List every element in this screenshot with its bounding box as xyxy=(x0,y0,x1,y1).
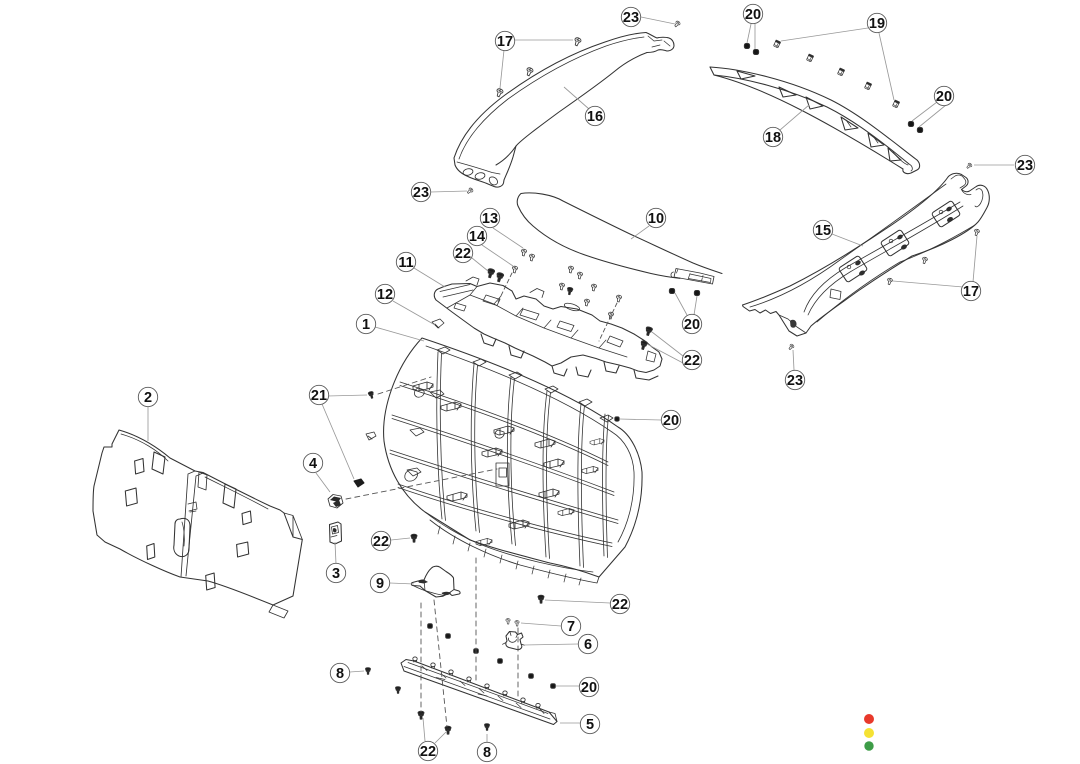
svg-text:3: 3 xyxy=(332,566,340,582)
svg-text:16: 16 xyxy=(587,109,603,125)
svg-text:10: 10 xyxy=(648,211,664,227)
svg-text:7: 7 xyxy=(567,619,575,635)
svg-text:1: 1 xyxy=(362,317,370,333)
svg-text:18: 18 xyxy=(765,130,781,146)
svg-text:2: 2 xyxy=(144,390,152,406)
svg-text:8: 8 xyxy=(483,745,491,761)
svg-text:4: 4 xyxy=(309,456,317,472)
svg-text:22: 22 xyxy=(455,246,471,262)
svg-text:8: 8 xyxy=(336,666,344,682)
svg-text:23: 23 xyxy=(623,10,639,26)
svg-text:14: 14 xyxy=(469,229,485,245)
svg-text:22: 22 xyxy=(420,744,436,760)
svg-text:21: 21 xyxy=(311,388,327,404)
svg-text:17: 17 xyxy=(497,34,513,50)
svg-text:13: 13 xyxy=(482,211,498,227)
svg-text:20: 20 xyxy=(581,680,597,696)
svg-text:20: 20 xyxy=(663,413,679,429)
svg-text:9: 9 xyxy=(376,576,384,592)
svg-text:20: 20 xyxy=(684,317,700,333)
svg-text:17: 17 xyxy=(963,284,979,300)
svg-text:23: 23 xyxy=(1017,158,1033,174)
svg-text:19: 19 xyxy=(869,16,885,32)
svg-text:11: 11 xyxy=(398,255,413,271)
svg-text:6: 6 xyxy=(584,637,592,653)
svg-text:12: 12 xyxy=(377,287,393,303)
svg-text:15: 15 xyxy=(815,223,831,239)
svg-text:20: 20 xyxy=(745,7,761,23)
svg-text:22: 22 xyxy=(373,534,389,550)
svg-text:23: 23 xyxy=(413,185,429,201)
svg-text:22: 22 xyxy=(612,597,628,613)
svg-text:5: 5 xyxy=(586,717,594,733)
svg-text:20: 20 xyxy=(936,89,952,105)
svg-text:23: 23 xyxy=(787,373,803,389)
svg-text:22: 22 xyxy=(684,353,700,369)
